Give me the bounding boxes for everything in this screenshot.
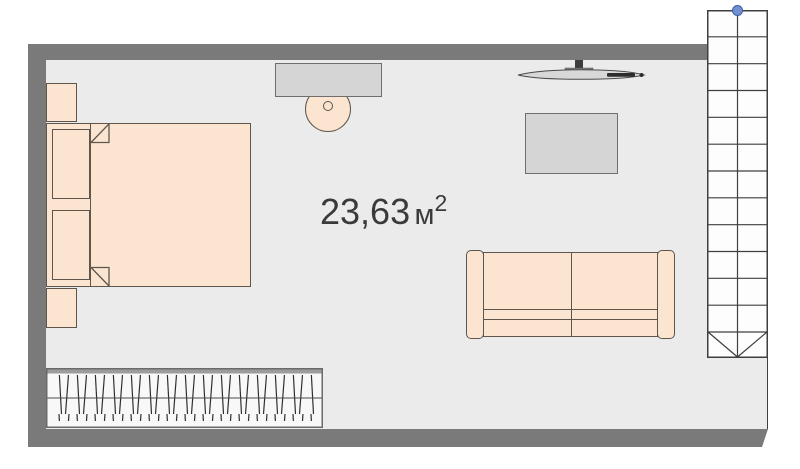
- sofa-seat-edge: [483, 319, 658, 320]
- sofa-seat-edge: [483, 309, 658, 310]
- wardrobe[interactable]: [46, 368, 323, 428]
- wardrobe-rail-icon: [48, 370, 322, 374]
- area-exponent: 2: [434, 190, 447, 216]
- wall-top: [28, 44, 707, 60]
- wall-bottom: [28, 429, 768, 447]
- desk[interactable]: [275, 63, 382, 97]
- wall-left: [28, 44, 46, 447]
- stool-center-icon: [323, 101, 333, 111]
- sofa-cushion-divider: [571, 252, 572, 337]
- staircase[interactable]: [707, 10, 768, 358]
- sofa[interactable]: [466, 250, 675, 339]
- sofa-armrest: [657, 250, 675, 339]
- blanket: [90, 123, 251, 287]
- floorplan-canvas: 23,63 м2: [0, 0, 800, 469]
- selection-handle[interactable]: [732, 5, 743, 16]
- pillow-icon: [52, 210, 90, 280]
- nightstand-bottom[interactable]: [46, 288, 77, 328]
- nightstand-top[interactable]: [46, 83, 77, 122]
- room-boundary-line: [767, 357, 769, 429]
- side-table[interactable]: [525, 113, 618, 174]
- room-area-label: 23,63 м2: [320, 190, 447, 233]
- pillow-icon: [52, 129, 90, 199]
- area-unit: м: [415, 199, 435, 231]
- area-value: 23,63: [320, 191, 410, 232]
- sofa-armrest: [466, 250, 484, 339]
